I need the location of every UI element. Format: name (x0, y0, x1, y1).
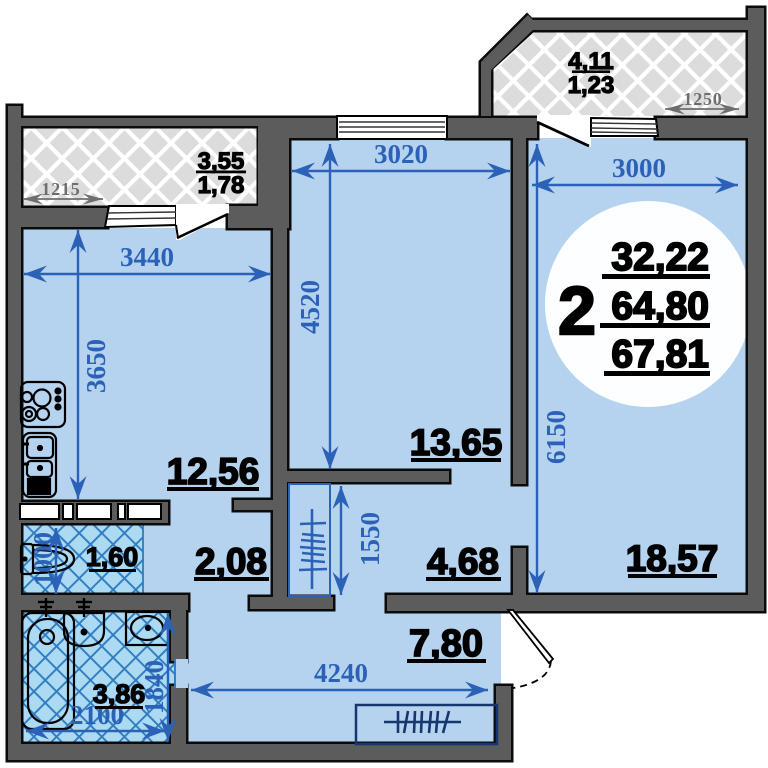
svg-text:6150: 6150 (541, 410, 571, 464)
svg-text:1,60: 1,60 (86, 542, 139, 572)
svg-text:3650: 3650 (81, 339, 111, 393)
svg-text:32,22: 32,22 (611, 236, 709, 279)
svg-text:1000: 1000 (28, 532, 58, 586)
svg-text:1,23: 1,23 (568, 72, 615, 99)
svg-text:3,86: 3,86 (93, 679, 146, 709)
svg-text:18,57: 18,57 (626, 538, 719, 579)
svg-text:4240: 4240 (314, 658, 368, 688)
svg-text:3000: 3000 (612, 153, 666, 183)
svg-text:2: 2 (558, 273, 596, 349)
svg-text:12,56: 12,56 (167, 451, 260, 492)
svg-text:3440: 3440 (120, 242, 174, 272)
svg-text:67,81: 67,81 (611, 333, 709, 376)
svg-text:1,78: 1,78 (198, 172, 245, 199)
svg-text:1550: 1550 (355, 512, 385, 566)
svg-text:2,08: 2,08 (195, 541, 267, 582)
svg-text:4520: 4520 (295, 280, 325, 334)
svg-text:7,80: 7,80 (409, 623, 483, 665)
svg-text:3020: 3020 (374, 139, 428, 169)
svg-text:64,80: 64,80 (611, 285, 709, 328)
svg-text:13,65: 13,65 (410, 422, 503, 463)
svg-text:1215: 1215 (41, 179, 80, 199)
svg-text:4,68: 4,68 (427, 541, 499, 582)
svg-text:1250: 1250 (683, 89, 722, 109)
